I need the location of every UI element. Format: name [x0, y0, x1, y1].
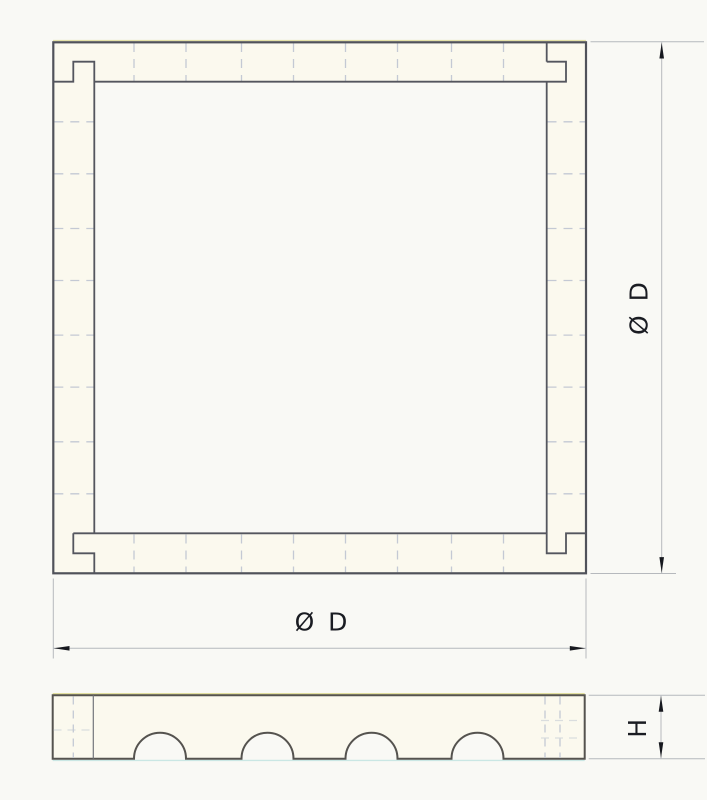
- drawing-svg: Ø D Ø D H: [0, 0, 707, 800]
- arrowhead-left-icon: [54, 646, 70, 651]
- side-view: [53, 694, 585, 761]
- dim-label-diameter-bottom: Ø D: [295, 608, 351, 637]
- arrowhead-up-icon: [659, 696, 664, 712]
- dim-label-diameter-right: Ø D: [625, 279, 654, 335]
- dimension-height-side: H: [589, 695, 705, 758]
- arrowhead-down-icon: [659, 742, 664, 758]
- side-view-bar-outline: [53, 695, 585, 758]
- plan-outer-outline: [53, 42, 586, 573]
- engineering-drawing-page: Ø D Ø D H: [0, 0, 707, 800]
- arrowhead-right-icon: [570, 646, 586, 651]
- plan-view: [53, 41, 586, 574]
- dim-label-height: H: [623, 716, 652, 738]
- arrowhead-up-icon: [659, 43, 664, 59]
- plan-inner-boundary: [53, 42, 586, 572]
- plan-frame-ring-fill: [53, 42, 586, 573]
- arrowhead-down-icon: [659, 557, 664, 573]
- dimension-diameter-bottom: Ø D: [53, 579, 586, 659]
- dimension-diameter-right: Ø D: [591, 42, 705, 574]
